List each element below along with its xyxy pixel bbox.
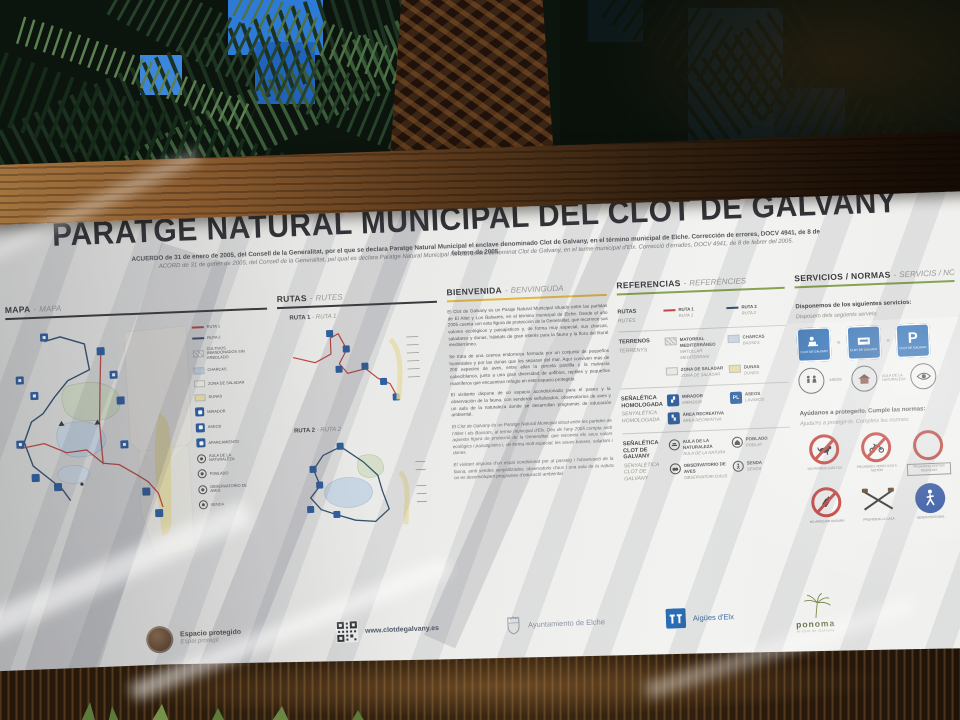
welcome-paragraph-valencian: El visitant disposa d'un espai condicion…: [453, 456, 614, 482]
mapa-title-va: MAPA: [39, 304, 61, 314]
palm-sketch-icon: [797, 592, 832, 619]
parking-service-sign: P CLOT DE GALVANY: [895, 323, 930, 358]
toilets-icon: [798, 367, 825, 394]
nature-house-icon: [851, 365, 878, 392]
legend-item: POBLADO: [197, 467, 265, 479]
legend-item: AULA DE LA NATURALEZA: [197, 452, 265, 464]
mapa-title-es: MAPA: [5, 304, 31, 315]
protected-label-va: Espai protegit: [180, 636, 241, 645]
route1-line-swatch: [663, 309, 675, 311]
panel-mapa: MAPA - MAPA: [5, 295, 278, 573]
information-sign-board: PARATGE NATURAL MUNICIPAL DEL CLOT DE GA…: [0, 166, 960, 687]
prohibition-sign: PROHIBIDO VERTER RESIDUOS: [905, 429, 953, 475]
no-hunting-sign: PROHIBIDA LA CAZA: [855, 484, 902, 523]
terrain-item: ZONA DE SALADARZONA DE SALADAR: [666, 365, 725, 379]
bienvenida-title-es: BIENVENIDA: [446, 285, 502, 297]
saladar-swatch: [666, 367, 678, 375]
observatory-service-sign: CLOT DE GALVANY: [846, 325, 881, 360]
referencias-header: REFERENCIAS - REFERÈNCIES: [616, 274, 784, 296]
park-map: [6, 320, 202, 572]
mapa-header: MAPA - MAPA: [5, 295, 267, 321]
photo-of-park-sign: PARATGE NATURAL MUNICIPAL DEL CLOT DE GA…: [0, 0, 960, 720]
dunes-swatch: [729, 365, 741, 373]
bienvenida-title-va: BENVINGUDA: [510, 284, 563, 295]
ayuntamiento-block: Ayuntamiento de Elche: [506, 609, 667, 634]
parking-letter: P: [908, 331, 919, 346]
no-dogs-sign: NO PERROS SUELTOS: [801, 433, 849, 479]
walker-icon: [733, 461, 744, 472]
bird-observatory-icon: [198, 485, 207, 494]
hatched-swatch: [665, 337, 677, 345]
aigues-label: Aigües d'Elx: [693, 612, 734, 623]
map-legend: RUTA 1 RUTA 2 CULTIVOS ABANDONADOS SIN A…: [191, 317, 269, 565]
servicios-title-es: SERVICIOS / NORMAS: [794, 270, 891, 284]
ruta2-reference: RUTA 2RUTA 2: [726, 303, 785, 317]
protected-area-logo-block: Espacio protegido Espai protegit: [146, 619, 337, 654]
service-circles-row: ASEOS AULA DE LA NATURALEZA: [798, 362, 959, 394]
nature-classroom-icon: [669, 439, 680, 450]
bienvenida-header: BIENVENIDA - BENVINGUDA: [446, 281, 606, 302]
legend-item: DUNAS: [194, 392, 262, 402]
clot-de-galvany-logo: [146, 625, 174, 653]
ruta2-mini-legend: [415, 461, 427, 501]
hatched-swatch: [193, 350, 204, 357]
norms-heading: Ayúdanos a protegerlo. Cumple las normas…: [799, 396, 960, 427]
legend-item: RUTA 1: [192, 323, 260, 330]
clot-sign-item: SENDASENDA: [733, 459, 793, 479]
norms-grid: NO PERROS SUELTOS PROHIBIDO VEHÍCULOS A …: [801, 429, 960, 525]
nature-classroom-icon: [197, 454, 206, 463]
homologated-sign-item: ▞ MIRADORMIRADOR: [667, 392, 726, 406]
aigues-delx-logo: [665, 608, 686, 629]
ayuntamiento-label: Ayuntamiento de Elche: [528, 617, 605, 629]
separator: -: [505, 286, 508, 295]
pond-swatch: [728, 335, 740, 343]
saladar-swatch: [194, 381, 205, 388]
panel-servicios-normas: SERVICIOS / NORMAS - SERVICIS / NORMES D…: [794, 267, 960, 541]
referencias-title-va: REFERÈNCIES: [689, 276, 746, 287]
aigues-block: Aigües d'Elx: [665, 604, 796, 629]
referencias-title-es: REFERENCIAS: [616, 278, 681, 291]
ruta1-map: [278, 318, 434, 420]
separator: -: [33, 305, 36, 314]
ruta1-mini-legend: [406, 337, 420, 377]
ponoma-subtitle: el Clot de Galvany: [797, 628, 835, 634]
sign-footer: Espacio protegido Espai protegit: [145, 592, 836, 660]
separator: -: [310, 294, 313, 303]
panel-referencias: REFERENCIAS - REFERÈNCIES RUTAS RUTES RU…: [616, 274, 795, 549]
servicios-header: SERVICIOS / NORMAS - SERVICIS / NORMES: [794, 267, 954, 288]
referencias-terrenos-section: TERRENOS TERRENYS MATORRAL MEDITERRÁNEOM…: [618, 326, 788, 390]
services-heading: Disponemos de los siguientes servicios: …: [795, 289, 956, 320]
ground-plants: [60, 698, 440, 720]
service-signs-row: CLOT DE GALVANY ≡ CLOT DE GALVANY ≡ P CL…: [796, 322, 957, 362]
website-url: www.clotdegalvany.es: [365, 624, 439, 634]
legend-item: APARCAMIENTO: [196, 436, 264, 448]
dash-mark: ≡: [886, 339, 890, 345]
terrain-item: MATORRAL MEDITERRÁNEOMATOLLAR MEDITERRAN…: [665, 335, 725, 361]
ponoma-block: ponoma el Clot de Galvany: [795, 592, 836, 634]
separator: -: [683, 279, 686, 288]
sign-panels: MAPA - MAPA: [5, 267, 960, 573]
welcome-paragraph: El visitante dispone de un espacio acond…: [451, 386, 612, 419]
eye-observation-icon: [910, 363, 937, 390]
welcome-paragraph: El Clot de Galvany es un Paraje Natural …: [447, 303, 608, 349]
legend-item: RUTA 2: [192, 334, 260, 341]
dash-mark: ≡: [837, 341, 841, 347]
aseos-sign-icon: PL: [730, 392, 742, 404]
referencias-clot-section: SEÑALÉTICA CLOT DE GALVANY SENYALÈTICA C…: [622, 428, 792, 491]
clot-sign-item: POBLADOPOBLAT: [732, 435, 792, 455]
no-litter-sign: NO ARROJAR BASURA: [803, 486, 850, 525]
clot-sign-item: OBSERVATORIO DE AVESOBSERVATORI D'AUS: [670, 461, 730, 481]
legend-item: CHARCAS: [193, 365, 261, 375]
qr-code: [336, 620, 359, 643]
mirador-icon: [195, 408, 204, 417]
path-icon: [199, 501, 208, 510]
map-vegetation-area: [61, 381, 120, 422]
mirador-sign-icon: ▞: [667, 394, 679, 406]
village-icon: [197, 470, 206, 479]
parking-icon: [196, 439, 205, 448]
dunes-swatch: [194, 394, 205, 401]
welcome-paragraph: Se trata de una cuenca endorreica formad…: [449, 348, 610, 388]
elche-coat-of-arms-icon: [506, 615, 522, 635]
ruta1-reference: RUTA 1RUTA 1: [663, 305, 722, 319]
rutas-title-es: RUTAS: [277, 293, 308, 304]
legend-item: OBSERVATORIO DE AVES: [198, 483, 266, 495]
servicios-title-va: SERVICIS / NORMES: [899, 267, 954, 279]
panel-rutas: RUTAS - RUTES RUTA 1 - RUTA 1: [277, 288, 448, 562]
legend-item: CULTIVOS ABANDONADOS SIN ARBOLADO: [193, 345, 261, 361]
map-pond-small: [57, 465, 90, 484]
website-block: www.clotdegalvany.es: [336, 614, 507, 643]
terrain-item: DUNASDUNES: [729, 363, 788, 377]
separator: -: [893, 270, 896, 279]
homologated-sign-item: ▚ ÁREA RECREATIVAÀREA RECREATIVA: [668, 410, 727, 424]
route2-line-swatch: [726, 307, 738, 309]
homologated-sign-item: PL ASEOSLAVABOS: [730, 390, 789, 404]
rutas-title-va: RUTES: [315, 293, 342, 303]
legend-item: MIRADOR: [195, 405, 263, 417]
area-recreativa-sign-icon: ▚: [668, 412, 680, 424]
welcome-paragraph-valencian: El Clot de Galvany és un Paratge Natural…: [452, 418, 613, 458]
referencias-homologada-section: SEÑALÉTICA HOMOLOGADA SENYALÈTICA HOMOLO…: [621, 383, 791, 435]
clot-sign-item: AULA DE LA NATURALEZAAULA DE LA NATURA: [669, 437, 729, 457]
ruta2-map: [282, 431, 438, 541]
legend-item: ASEOS: [196, 421, 264, 433]
toilets-icon: [196, 423, 205, 432]
map-pond-large: [56, 421, 106, 458]
rutas-header: RUTAS - RUTES: [277, 288, 437, 309]
legend-item: ZONA DE SALADAR: [194, 378, 262, 388]
panel-bienvenida: BIENVENIDA - BENVINGUDA El Clot de Galva…: [446, 281, 617, 555]
no-motor-vehicles-sign: PROHIBIDO VEHÍCULOS A MOTOR: [853, 431, 901, 477]
binoculars-icon: [670, 463, 681, 474]
legend-item: SENDA: [199, 498, 267, 510]
village-icon: [732, 437, 743, 448]
mirador-service-sign: CLOT DE GALVANY: [796, 327, 831, 362]
route1-line-swatch: [192, 326, 204, 328]
pond-swatch: [193, 367, 204, 374]
pedestrian-path-sign: SENDA PEATONAL: [907, 482, 954, 521]
route2-line-swatch: [192, 337, 204, 339]
terrain-item: CHARCASBASSES: [728, 333, 788, 359]
